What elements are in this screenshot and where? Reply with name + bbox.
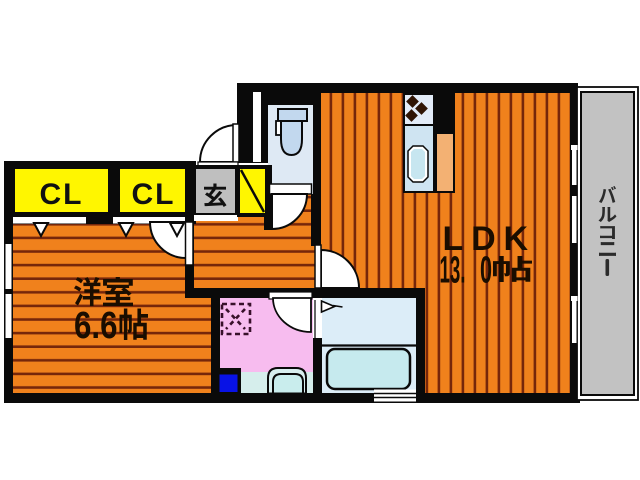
svg-text:0: 0 bbox=[480, 250, 492, 292]
svg-text:6.6: 6.6 bbox=[74, 305, 118, 347]
svg-text:13.: 13. bbox=[440, 250, 466, 292]
svg-text:CL: CL bbox=[132, 178, 176, 211]
svg-text:CL: CL bbox=[40, 178, 84, 211]
